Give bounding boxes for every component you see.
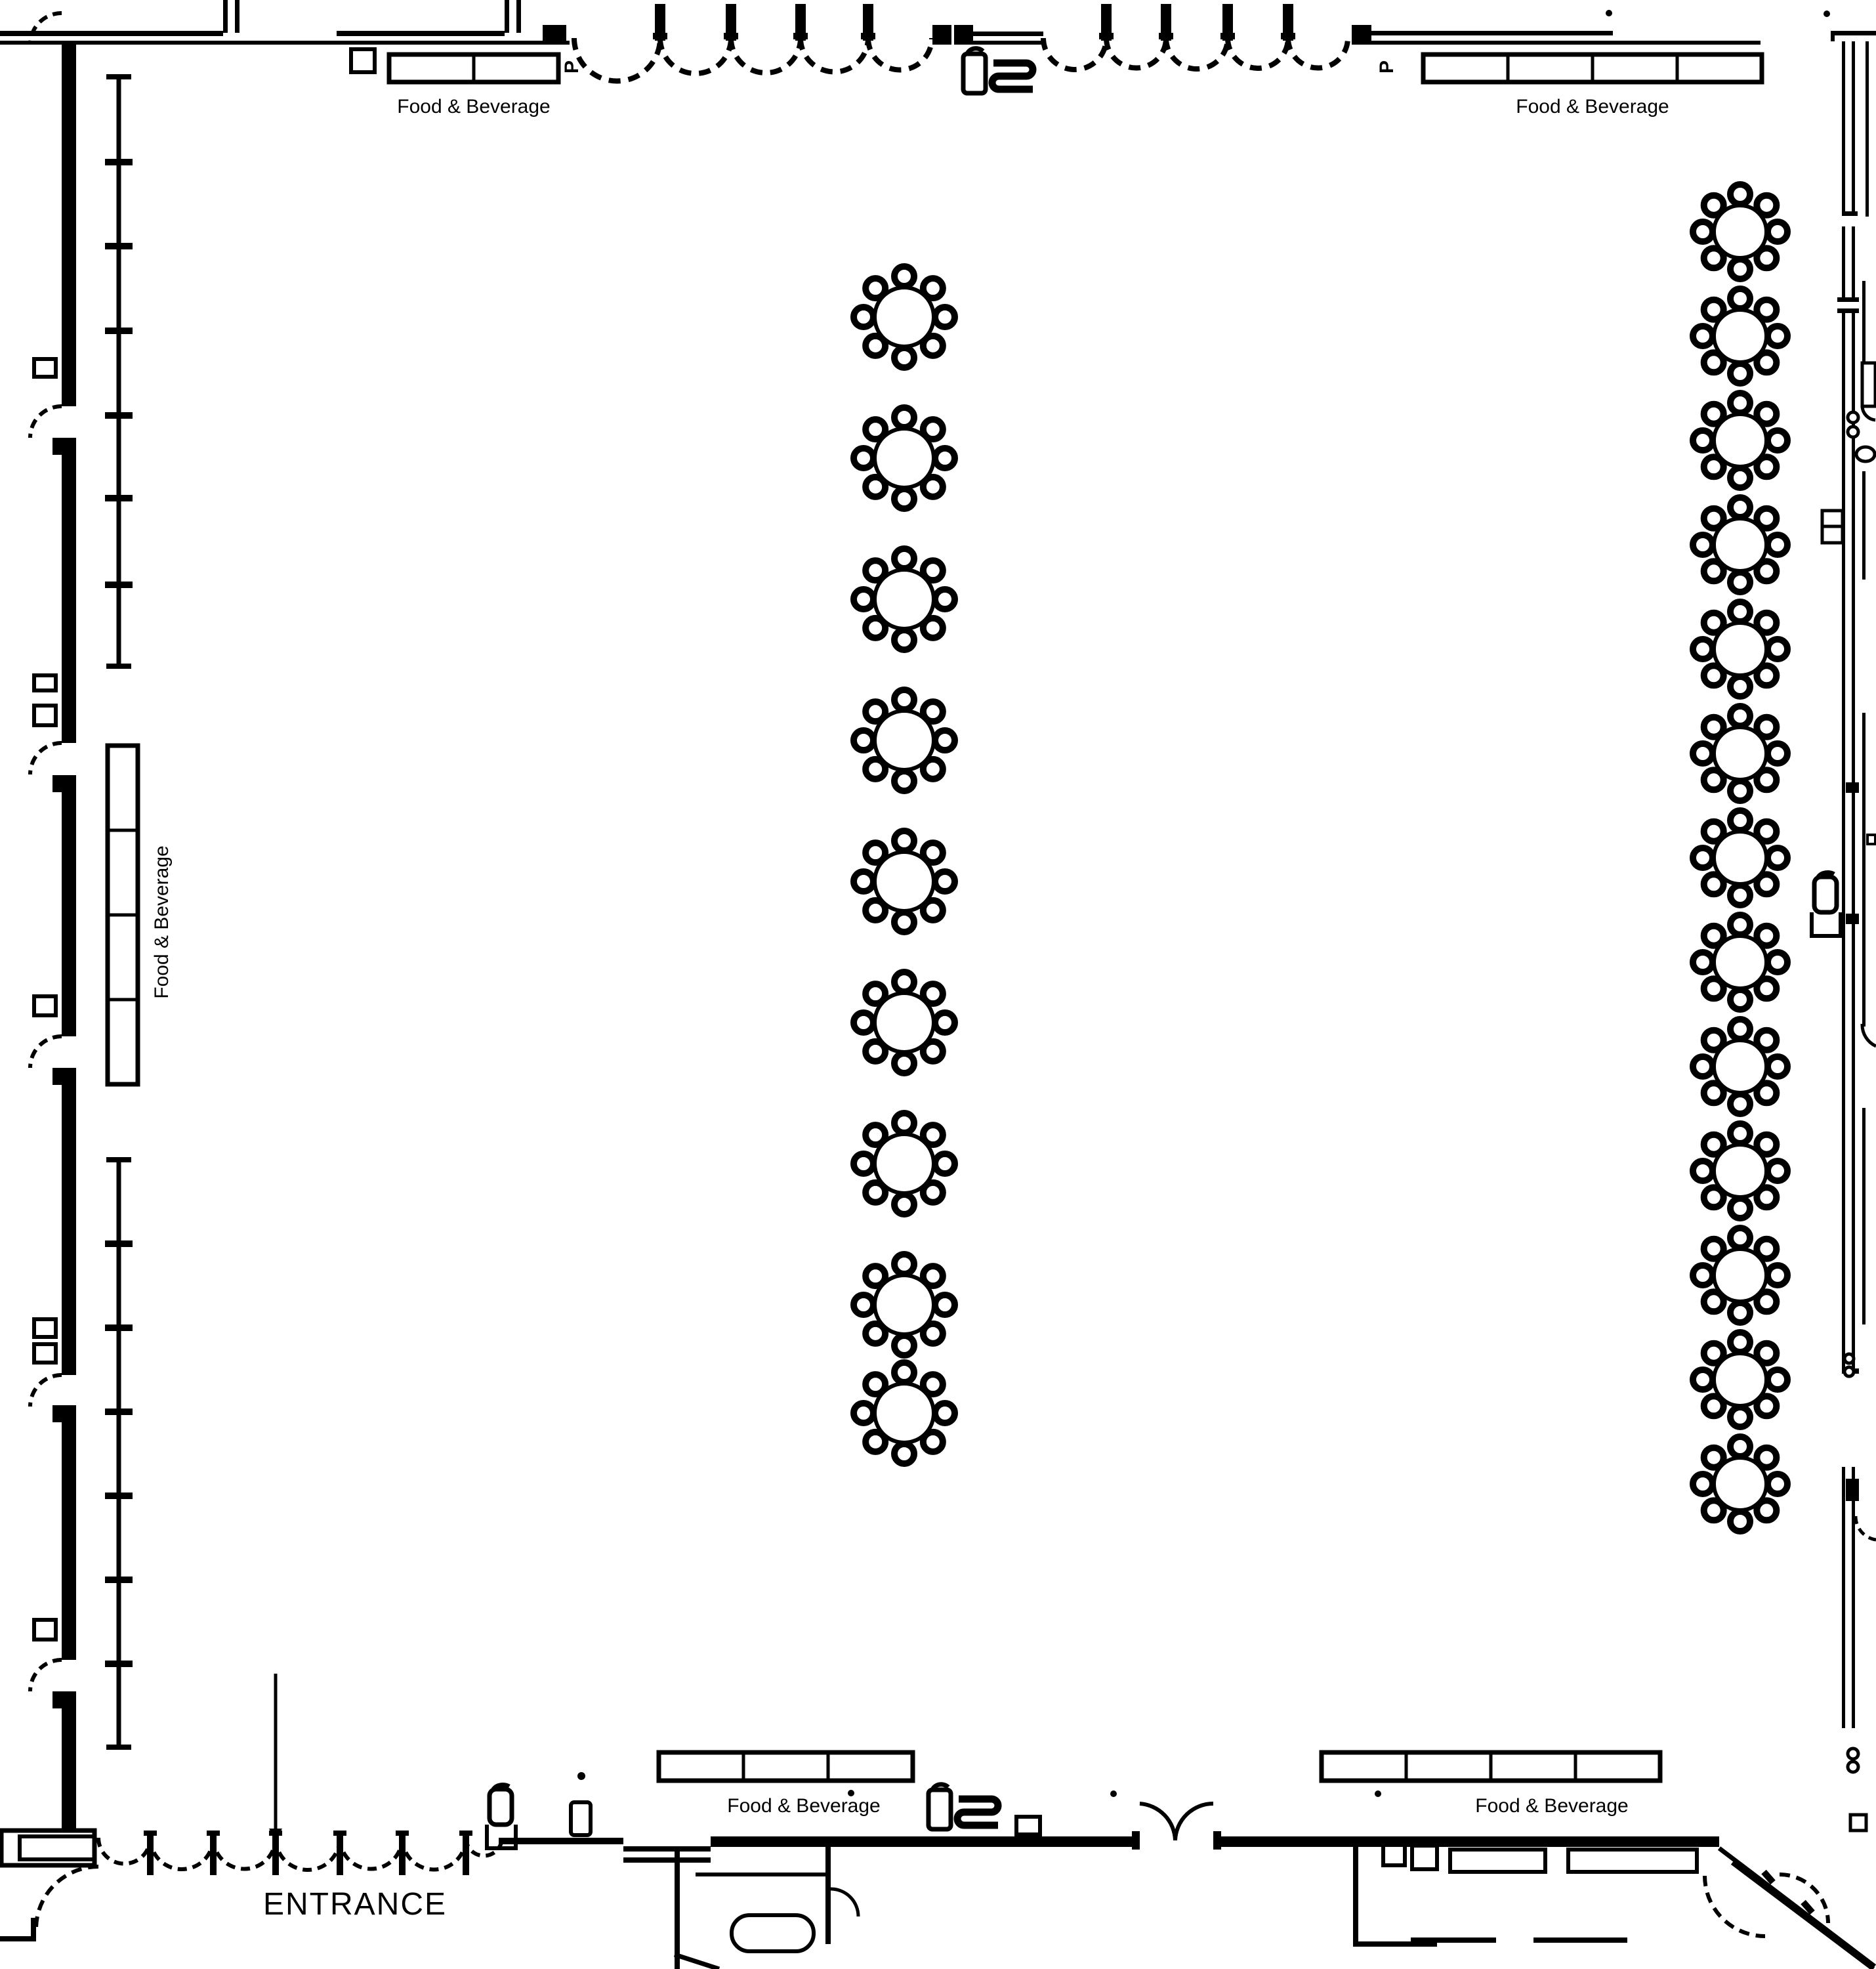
wall	[1371, 41, 1761, 45]
chair	[1730, 885, 1750, 905]
plumbing-fixture	[1845, 1354, 1854, 1363]
wall	[62, 438, 76, 743]
wall	[223, 0, 228, 33]
wall	[1411, 1937, 1496, 1943]
partition-scallop-arc	[1288, 38, 1348, 68]
chair	[935, 730, 955, 750]
round-table	[875, 993, 934, 1052]
partition-scallop-arc	[868, 38, 932, 70]
round-table	[1714, 1458, 1766, 1510]
detail-arc	[1862, 1024, 1876, 1046]
wall	[52, 438, 62, 455]
water-station-icon-top	[963, 54, 986, 93]
chair	[894, 1336, 914, 1355]
partition-scallop-arc	[731, 38, 801, 73]
wall	[0, 31, 223, 36]
dashed-arc	[36, 1867, 98, 1929]
chair	[1768, 639, 1787, 659]
entrance-scallop-arc	[340, 1838, 402, 1869]
fire-extinguisher-icon-corridor	[1812, 912, 1841, 936]
partition-scallop-arc	[1106, 38, 1166, 68]
chair	[854, 1295, 873, 1315]
wall-mounted-box	[34, 675, 56, 690]
plumbing-fixture	[1848, 427, 1858, 437]
wall	[1842, 313, 1845, 1368]
chair	[1768, 1161, 1787, 1181]
chair	[894, 549, 914, 568]
chair	[1730, 1332, 1750, 1352]
partition-scallop-arc	[1228, 38, 1288, 68]
wall	[1862, 281, 1866, 363]
chair	[1730, 781, 1750, 801]
chair	[935, 1295, 955, 1315]
entrance-door-post	[399, 1836, 406, 1875]
round-table	[875, 570, 934, 629]
round-table	[875, 711, 934, 770]
wall	[1862, 713, 1866, 1027]
chair	[1693, 1474, 1713, 1494]
chair	[1768, 535, 1787, 555]
fnb-station-table	[659, 1752, 913, 1781]
wall	[1846, 914, 1859, 924]
wall	[1842, 1467, 1845, 1728]
fire-extinguisher-icon-entrance	[490, 1789, 512, 1825]
chair	[1693, 744, 1713, 763]
door-swing-arc	[30, 1375, 62, 1407]
wall	[973, 41, 1043, 45]
chair	[854, 307, 873, 327]
wall	[675, 1847, 680, 1969]
wall-mounted-box	[34, 1620, 56, 1640]
chair	[1730, 468, 1750, 488]
wall	[1353, 1847, 1358, 1947]
wall-mounted-box	[34, 706, 56, 725]
drinking-fountain-icon	[571, 1802, 591, 1835]
wall-line	[1719, 1848, 1875, 1966]
chair	[1768, 326, 1787, 346]
chair	[1768, 222, 1787, 242]
chair	[894, 630, 914, 650]
chair	[1730, 915, 1750, 935]
dashed-arc	[1856, 1516, 1876, 1540]
chair	[935, 1013, 955, 1032]
wall	[62, 45, 76, 406]
wall	[954, 25, 973, 45]
chair	[1730, 811, 1750, 830]
floor-plan: Food & BeverageFood & BeverageFood & Bev…	[0, 0, 1876, 1969]
phone-marker-label: P	[1376, 60, 1398, 74]
chair	[894, 408, 914, 427]
chair	[1693, 326, 1713, 346]
chair	[894, 1113, 914, 1133]
chair	[894, 912, 914, 932]
chair	[1693, 535, 1713, 555]
plumbing-fixture	[1856, 447, 1875, 461]
wall	[1862, 1108, 1866, 1324]
wall	[825, 1847, 831, 1944]
partition-scallop-arc	[574, 38, 660, 81]
round-table	[875, 1275, 934, 1334]
wall	[62, 1068, 76, 1375]
wall	[623, 1846, 711, 1852]
entrance-door-post	[337, 1836, 343, 1875]
fnb-station-label: Food & Beverage	[727, 1795, 880, 1817]
wall-mounted-box	[34, 996, 56, 1015]
column-marker-dot	[1375, 1790, 1381, 1797]
wall	[0, 1936, 36, 1941]
wall	[932, 25, 951, 45]
entrance-scallop-arc	[150, 1838, 213, 1869]
chair	[1768, 1057, 1787, 1076]
detail-arc	[1862, 406, 1875, 420]
partition-post-base	[653, 33, 667, 39]
wall	[52, 1691, 62, 1708]
detail-arc	[831, 1889, 858, 1916]
chair	[894, 972, 914, 992]
fire-extinguisher-icon-corridor	[1814, 877, 1837, 912]
wall	[1371, 31, 1613, 35]
phone-marker-label: P	[561, 60, 583, 74]
chair	[1730, 1407, 1750, 1427]
detail-arc	[1140, 1804, 1213, 1840]
chair	[894, 831, 914, 851]
partition-post-base	[1159, 33, 1173, 39]
outline-fixture	[351, 49, 375, 72]
door-swing-arc	[30, 1036, 62, 1068]
partition-post-base	[1281, 33, 1295, 39]
outline-fixture	[1016, 1817, 1040, 1834]
chair	[1693, 431, 1713, 450]
chair	[1730, 1198, 1750, 1218]
chair	[1693, 1057, 1713, 1076]
chair	[854, 589, 873, 609]
outline-fixture	[20, 1836, 94, 1859]
chair	[1730, 498, 1750, 517]
wall	[1842, 211, 1858, 216]
round-table	[1714, 832, 1766, 884]
wall	[1831, 31, 1835, 41]
wall	[1852, 41, 1855, 213]
chair	[1730, 259, 1750, 279]
wall-mounted-box	[34, 1319, 56, 1337]
wall	[696, 1873, 827, 1876]
plumbing-fixture	[1848, 1762, 1858, 1772]
wall	[1852, 226, 1855, 297]
partition-scallop-arc	[1166, 38, 1228, 69]
entrance-door-post	[272, 1836, 279, 1875]
chair	[894, 1053, 914, 1073]
wall	[1852, 1467, 1855, 1728]
chair	[854, 730, 873, 750]
wall	[543, 25, 566, 45]
chair	[1768, 1265, 1787, 1285]
wall	[52, 1068, 62, 1085]
entrance-scallop-arc	[276, 1838, 340, 1870]
chair	[1693, 1370, 1713, 1389]
entrance-scallop-arc	[213, 1838, 276, 1869]
wall	[1842, 41, 1845, 213]
wall	[1831, 31, 1876, 35]
chair	[854, 448, 873, 468]
round-table	[875, 287, 934, 347]
chair	[1768, 1370, 1787, 1389]
column-marker-dot	[848, 1790, 854, 1796]
chair	[935, 589, 955, 609]
partition-scallop-arc	[660, 38, 731, 74]
round-table	[1714, 1145, 1766, 1197]
wall	[1213, 1831, 1221, 1850]
wall	[973, 32, 1043, 36]
chair	[1730, 1437, 1750, 1456]
wall	[516, 0, 521, 33]
wall	[62, 1691, 76, 1831]
chair	[1730, 1228, 1750, 1248]
entrance-door-post	[147, 1836, 154, 1875]
water-station-icon-bottom	[957, 1799, 998, 1825]
chair	[1693, 1161, 1713, 1181]
column-marker-dot	[1110, 1790, 1117, 1797]
round-table	[1714, 1040, 1766, 1093]
chair	[1730, 677, 1750, 696]
chair	[1693, 639, 1713, 659]
floor-plan-canvas: Food & BeverageFood & BeverageFood & Bev…	[0, 0, 1876, 1969]
chair	[1730, 1512, 1750, 1531]
round-table	[875, 852, 934, 911]
wall	[623, 1857, 711, 1863]
chair	[1730, 990, 1750, 1009]
chair	[1730, 184, 1750, 204]
chair	[854, 872, 873, 891]
wall	[1852, 313, 1855, 1368]
chair	[894, 690, 914, 709]
entrance-door-post	[463, 1836, 469, 1875]
entrance-door-post-cap	[207, 1831, 220, 1836]
plumbing-fixture	[1845, 1367, 1854, 1376]
wall	[1846, 782, 1859, 793]
wall	[505, 0, 509, 33]
wall	[1837, 308, 1859, 313]
partition-post-base	[724, 33, 738, 39]
wall-mounted-box	[34, 1344, 56, 1363]
fnb-station-label: Food & Beverage	[1475, 1795, 1628, 1817]
plumbing-fixture	[1848, 412, 1858, 423]
entrance-scallop-arc	[98, 1838, 150, 1864]
chair	[894, 266, 914, 286]
door-swing-arc	[30, 743, 62, 774]
chair	[1730, 572, 1750, 592]
round-table	[1714, 727, 1766, 780]
outline-fixture	[1867, 835, 1875, 844]
chair	[935, 448, 955, 468]
wall	[1533, 1937, 1627, 1943]
entrance-door-post	[210, 1836, 217, 1875]
chair	[935, 1154, 955, 1174]
chair	[1693, 952, 1713, 972]
chair	[1730, 1019, 1750, 1039]
chair	[894, 1254, 914, 1274]
wall	[52, 775, 62, 792]
plumbing-fixture	[1848, 1748, 1858, 1759]
round-table	[1714, 205, 1766, 258]
partition-post-base	[793, 33, 808, 39]
round-table	[875, 429, 934, 488]
chair	[894, 1195, 914, 1214]
round-table	[1714, 1353, 1766, 1406]
wall	[337, 31, 505, 36]
chair	[1730, 1303, 1750, 1323]
wall	[1352, 25, 1371, 45]
column-marker-dot	[1606, 10, 1612, 16]
column-marker-dot	[1824, 11, 1830, 17]
outline-fixture	[1568, 1850, 1697, 1872]
wall	[1837, 297, 1859, 302]
chair	[854, 1154, 873, 1174]
round-table	[875, 1384, 934, 1443]
chair	[1768, 744, 1787, 763]
chair	[1730, 364, 1750, 383]
wall	[1132, 1831, 1140, 1850]
round-table	[1714, 310, 1766, 362]
chair	[1730, 393, 1750, 413]
fnb-station-label: Food & Beverage	[1516, 96, 1669, 117]
outline-fixture	[1450, 1850, 1545, 1872]
entrance-door-post-cap	[144, 1831, 157, 1836]
round-table	[1714, 936, 1766, 988]
dashed-arc	[30, 13, 62, 45]
wall	[1842, 226, 1845, 297]
chair	[1693, 848, 1713, 868]
wall	[62, 775, 76, 1036]
door-swing-arc	[30, 406, 62, 438]
entrance-door-post-cap	[333, 1831, 346, 1836]
wall	[1862, 471, 1866, 580]
chair	[1768, 431, 1787, 450]
wall	[31, 1918, 36, 1941]
chair	[1730, 602, 1750, 622]
water-station-icon-bottom	[928, 1790, 951, 1829]
chair	[854, 1013, 873, 1032]
chair	[1730, 289, 1750, 308]
dashed-arc	[1705, 1876, 1765, 1936]
chair	[1693, 222, 1713, 242]
fnb-station-label: Food & Beverage	[397, 96, 550, 117]
entrance-door-post-cap	[459, 1831, 472, 1836]
chair	[1730, 1094, 1750, 1114]
chair	[1730, 706, 1750, 726]
fnb-station-label: Food & Beverage	[151, 845, 173, 998]
partition-scallop-arc	[801, 38, 868, 72]
wall	[1866, 41, 1869, 217]
entrance-label: ENTRANCE	[263, 1887, 447, 1922]
chair	[1693, 1265, 1713, 1285]
door-swing-arc	[30, 1660, 62, 1691]
chair	[894, 771, 914, 791]
partition-post-base	[1099, 33, 1114, 39]
water-station-icon-top	[992, 63, 1033, 89]
chair	[894, 348, 914, 368]
round-table	[1714, 1249, 1766, 1302]
chair	[935, 872, 955, 891]
chair	[935, 1403, 955, 1423]
chair	[1768, 848, 1787, 868]
wall	[0, 41, 570, 45]
drinking-fountain-icon-dot	[577, 1772, 585, 1780]
lobby-table	[732, 1915, 814, 1951]
chair	[1768, 952, 1787, 972]
wall-line	[675, 1955, 719, 1969]
chair	[894, 489, 914, 509]
round-table	[1714, 623, 1766, 675]
partition-post-base	[861, 33, 875, 39]
entrance-scallop-arc	[402, 1838, 466, 1870]
outline-fixture	[1850, 1815, 1866, 1831]
wall	[235, 0, 240, 33]
wall	[711, 1836, 1132, 1847]
outline-fixture	[1862, 363, 1875, 406]
round-table	[1714, 414, 1766, 467]
wall	[52, 1405, 62, 1422]
entrance-door-post-cap	[396, 1831, 409, 1836]
chair	[894, 1363, 914, 1382]
wall-mounted-box	[34, 359, 56, 377]
chair	[1730, 1124, 1750, 1143]
chair	[935, 307, 955, 327]
chair	[1768, 1474, 1787, 1494]
chair	[894, 1444, 914, 1464]
wall	[62, 1405, 76, 1660]
wall	[1846, 1479, 1859, 1501]
partition-scallop-arc	[1043, 38, 1106, 70]
chair	[854, 1403, 873, 1423]
partition-post-base	[1220, 33, 1235, 39]
round-table	[1714, 519, 1766, 571]
outline-fixture	[1412, 1846, 1437, 1869]
wall	[1221, 1836, 1719, 1847]
round-table	[875, 1134, 934, 1193]
